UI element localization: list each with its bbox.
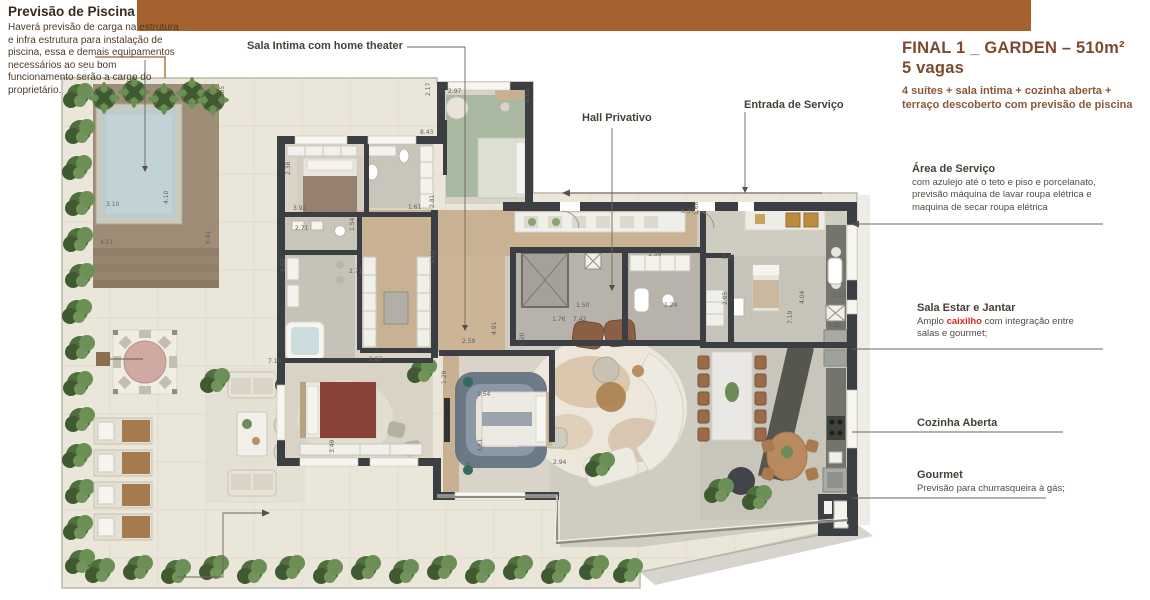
- dimension-label: 8.43: [420, 129, 434, 136]
- annotation-line: maquina de secar roupa elétrica: [912, 202, 1122, 214]
- dimension-label: 2.17: [425, 82, 432, 96]
- dimension-label: 2.05: [722, 291, 729, 305]
- annotation-text: Amplo: [917, 316, 947, 327]
- dimension-label: 1.29: [441, 370, 448, 384]
- annotation-text: com integração entre: [982, 316, 1074, 327]
- annotation-body: Previsão para churrasqueira à gás;: [917, 483, 1127, 495]
- right-ledge: [857, 195, 870, 525]
- dimension-label: 3.63: [280, 258, 287, 272]
- suite-2: [287, 146, 363, 214]
- unit-header: FINAL 1 _ GARDEN – 510m² 5 vagas 4 suíte…: [902, 39, 1150, 112]
- dimension-label: 7.42: [573, 316, 587, 323]
- dimension-label: 1.21: [722, 254, 736, 261]
- dimension-label: 3.10: [106, 201, 120, 208]
- dimension-label: 7.19: [268, 358, 282, 365]
- dimension-label: 7.19: [787, 310, 794, 324]
- note-body: Haverá previsão de carga na estrutura e …: [8, 22, 180, 97]
- dimension-label: 3.61: [477, 438, 484, 452]
- dimension-label: 2.38: [285, 161, 292, 175]
- annotation-title: Cozinha Aberta: [917, 417, 1127, 429]
- pool-deck: [93, 84, 219, 288]
- dimension-label: 4.02: [430, 249, 437, 263]
- master-suite: [444, 372, 552, 475]
- annotation-highlight: caixilho: [947, 316, 982, 327]
- annotation-body: Amplo caixilho com integração entre sala…: [917, 316, 1127, 341]
- dimension-label: 2.97: [448, 88, 462, 95]
- dimension-label: 1.24: [664, 302, 678, 309]
- dimension-label: 3.49: [329, 439, 336, 453]
- annotation-line: previsão máquina de lavar roupa elétrica…: [912, 189, 1122, 201]
- dimension-label: 1.61: [408, 204, 422, 211]
- note-title: Previsão de Piscina: [8, 4, 180, 19]
- dimension-label: 3.54: [465, 461, 472, 475]
- dimension-label: 4.10: [163, 190, 170, 204]
- unit-title: FINAL 1 _ GARDEN – 510m²: [902, 39, 1150, 59]
- dimension-label: 6.03: [524, 88, 531, 102]
- annotation-title: Área de Serviço: [912, 163, 1122, 175]
- annotation-title: Gourmet: [917, 469, 1127, 481]
- dimension-label: 2.50: [833, 292, 847, 299]
- dimension-label: 2.71: [349, 268, 363, 275]
- dimension-label: 4.51: [100, 239, 114, 246]
- annotation-body: com azulejo até o teto e piso e porcelan…: [912, 177, 1122, 214]
- note-previsao-piscina: Previsão de Piscina Haverá previsão de c…: [8, 4, 180, 97]
- annotation-area-servico: Área de Serviço com azulejo até o teto e…: [912, 163, 1122, 214]
- dimension-label: 1.50: [576, 302, 590, 309]
- unit-subtitle-line2: terraço descoberto com previsão de pisci…: [902, 98, 1150, 112]
- unit-parking: 5 vagas: [902, 59, 1150, 79]
- label-sala-intima: Sala Intima com home theater: [247, 40, 403, 52]
- annotation-line: salas e gourmet;: [917, 328, 1127, 340]
- dimension-label: 1.54: [349, 217, 356, 231]
- dimension-label: 2.95: [828, 322, 842, 329]
- tv-panel: [444, 398, 450, 442]
- annotation-cozinha: Cozinha Aberta: [917, 417, 1127, 431]
- dimension-label: 1.54: [477, 391, 491, 398]
- annotation-sala-estar: Sala Estar e Jantar Amplo caixilho com i…: [917, 302, 1127, 341]
- dimension-label: 4.91: [491, 321, 498, 335]
- dimension-label: 1.20: [519, 332, 526, 346]
- dimension-label: 6.41: [205, 230, 212, 244]
- annotation-line: com azulejo até o teto e piso e porcelan…: [912, 177, 1122, 189]
- unit-subtitle: 4 suítes + sala intima + cozinha aberta …: [902, 84, 1150, 113]
- label-entrada-servico: Entrada de Serviço: [744, 99, 844, 111]
- dimension-label: 3.92: [293, 205, 307, 212]
- dimension-label: 2.81: [429, 194, 436, 208]
- annotation-title: Sala Estar e Jantar: [917, 302, 1127, 314]
- dimension-label: 2.87: [369, 356, 383, 363]
- dimension-label: 1.66: [693, 201, 700, 215]
- dimension-label: 4.04: [799, 290, 806, 304]
- dimension-label: 1.39: [648, 251, 662, 258]
- label-hall-privativo: Hall Privativo: [582, 112, 652, 124]
- annotation-gourmet: Gourmet Previsão para churrasqueira à gá…: [917, 469, 1127, 495]
- dimension-label: 2.59: [462, 338, 476, 345]
- sala-intima-room: [443, 90, 528, 198]
- dimension-label: 2.94: [553, 459, 567, 466]
- unit-subtitle-line1: 4 suítes + sala intima + cozinha aberta …: [902, 84, 1150, 98]
- dimension-label: 1.76: [552, 316, 566, 323]
- annotation-line: Amplo caixilho com integração entre: [917, 316, 1127, 328]
- dimension-label: 2.71: [295, 225, 309, 232]
- dimension-label: 18.05: [219, 86, 226, 103]
